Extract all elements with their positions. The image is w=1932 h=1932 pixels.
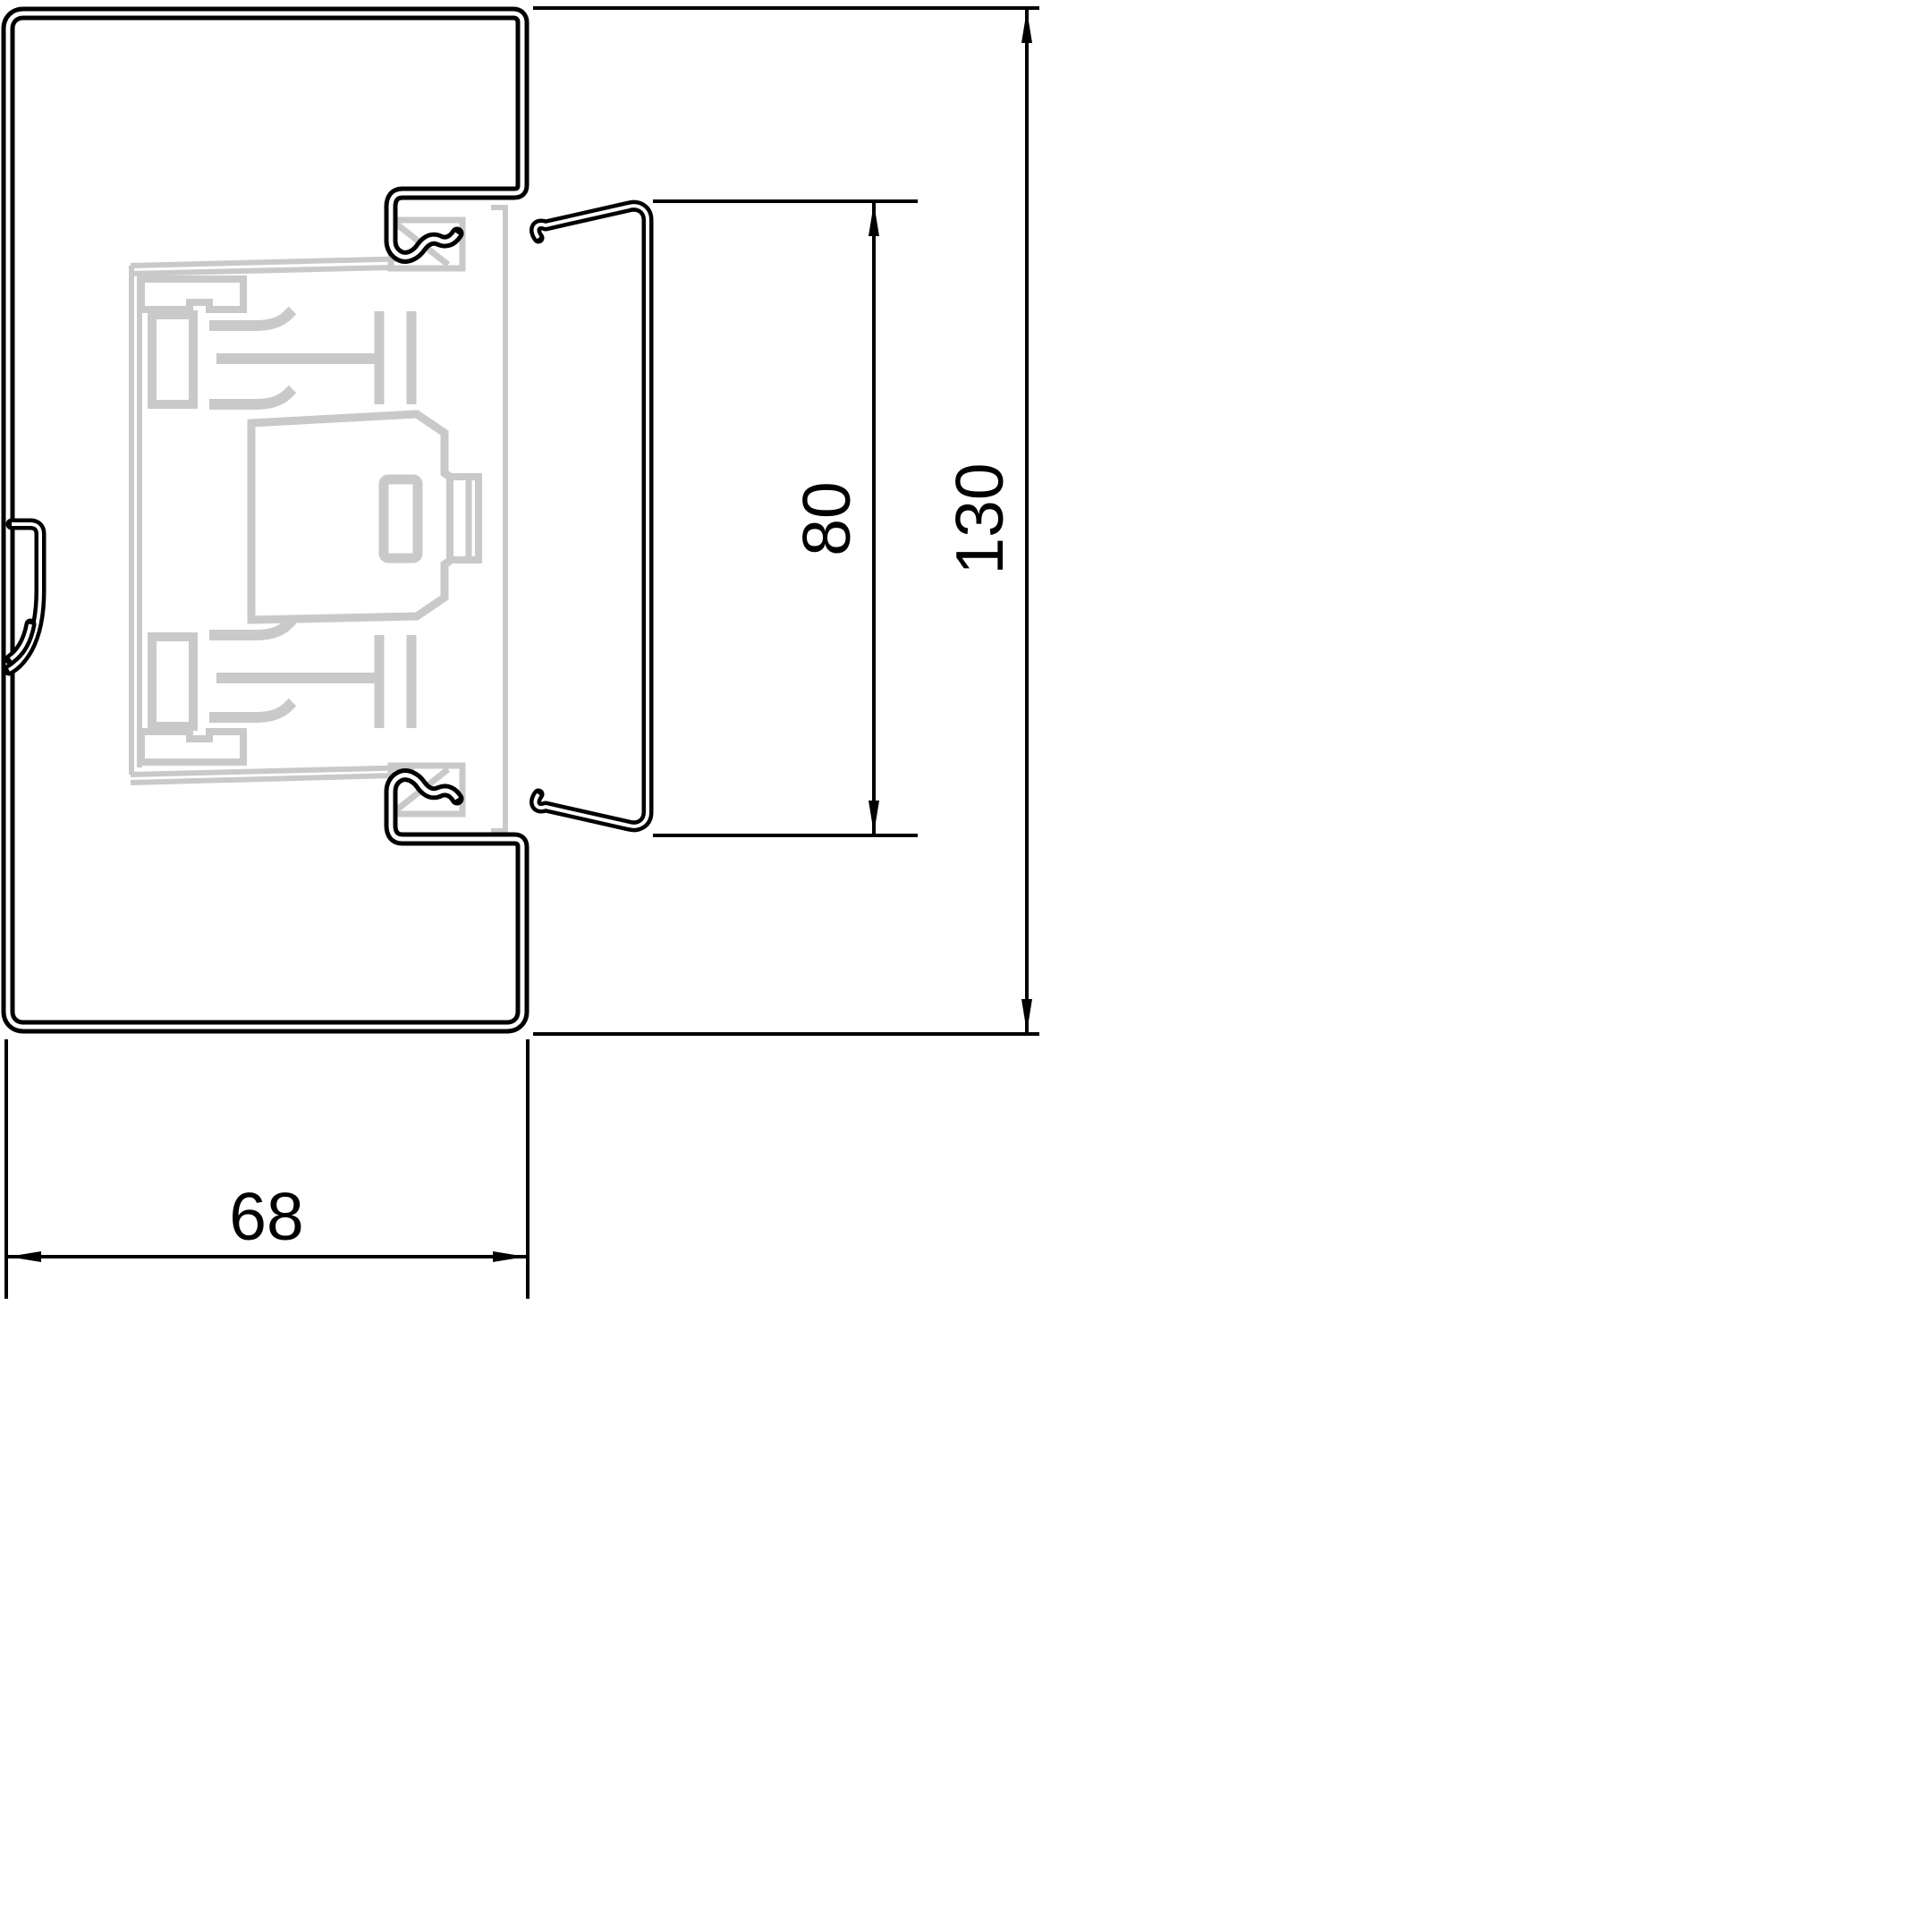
device-bottom-face-inner (131, 775, 394, 783)
device-contact-claw-4 (209, 702, 292, 717)
device-lower-terminal-box (152, 637, 193, 726)
dim-80-arrow-down-icon (869, 801, 879, 834)
ghost-device-insert (131, 208, 505, 831)
device-contact-claw-2 (209, 389, 292, 404)
bracket-outline (536, 206, 648, 826)
device-upper-flange (141, 279, 243, 309)
device-top-face-inner (131, 267, 394, 274)
device-slot (384, 479, 418, 558)
mounting-claw-bracket (536, 206, 648, 826)
dim-130-arrow-down-icon (1021, 999, 1032, 1032)
device-nose (450, 477, 479, 560)
bracket-outline-core (536, 206, 648, 826)
dim-80-label: 80 (789, 481, 864, 555)
profile-outline (8, 13, 522, 1027)
dim-130-label: 130 (942, 462, 1017, 574)
dim-130-arrow-up-icon (1021, 10, 1032, 43)
dim-68-label: 68 (229, 1179, 303, 1254)
dim-80-arrow-up-icon (869, 203, 879, 236)
profile-outline-core (8, 13, 522, 1027)
dim-68-arrow-right-icon (493, 1251, 526, 1262)
device-top-face-outer (131, 258, 414, 266)
dimensions: 130 80 68 (6, 8, 1039, 1299)
trunking-profile (8, 13, 522, 1027)
device-upper-terminal-box (152, 315, 193, 404)
drawing-canvas: 130 80 68 (0, 0, 1932, 1932)
device-front-face (491, 208, 505, 831)
device-lower-flange (141, 732, 243, 762)
dim-68-arrow-left-icon (8, 1251, 41, 1262)
technical-drawing: 130 80 68 (0, 0, 1932, 1932)
